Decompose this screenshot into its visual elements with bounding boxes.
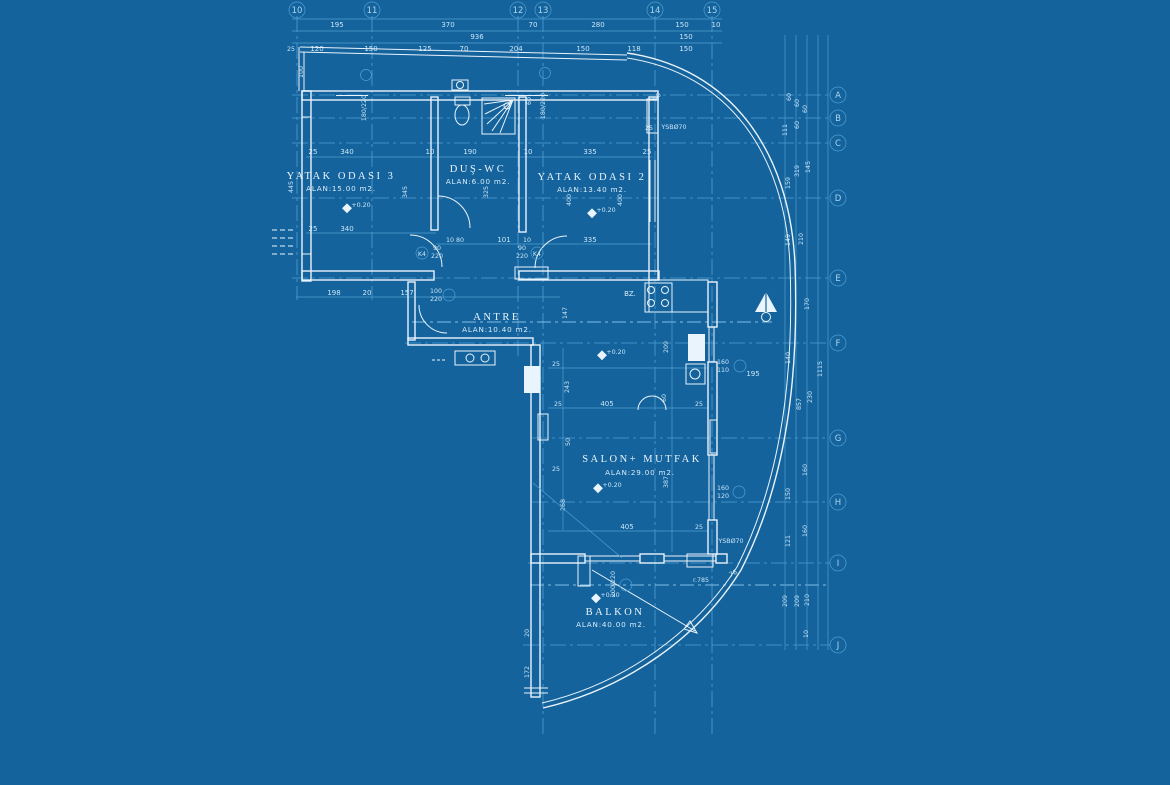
grid-bubbles-top: 10 11 12 13 14 15	[289, 2, 720, 18]
dim-text: 400	[566, 194, 573, 206]
dim-text: 25	[287, 46, 295, 53]
room-label-bath: DUŞ-WC	[450, 164, 506, 175]
blueprint-floor-plan: 10 11 12 13 14 15 A B C D E F G H I J 19…	[0, 0, 1170, 785]
room-area-bedroom3: ALAN:15.00 m2.	[306, 184, 376, 193]
dim-entry-door-height: 220	[430, 296, 442, 303]
elevation-text: +0.20	[602, 482, 621, 489]
appliance-label-bz: BZ.	[624, 290, 636, 298]
room-label-hall: ANTRE	[473, 312, 521, 323]
room-area-living: ALAN:29.00 m2.	[605, 468, 675, 477]
dim-text: 101	[497, 236, 510, 244]
dim-text: 60	[794, 121, 801, 129]
dim-text: 345	[402, 186, 409, 198]
door-size-label: 90	[518, 245, 526, 252]
grid-bubble-label: J	[836, 641, 840, 651]
window-size-label: 180/220	[361, 95, 368, 121]
dim-text: 25	[309, 225, 318, 233]
window-size-label: 200/220	[610, 571, 617, 597]
dim-text: 190	[463, 148, 476, 156]
dim-text: 195	[746, 370, 759, 378]
grid-bubble-label: 10	[292, 6, 303, 16]
dim-text: 325	[483, 186, 490, 198]
dim-text: 340	[340, 148, 353, 156]
grid-bubble-label: G	[835, 434, 842, 444]
grid-bubble-label: 11	[367, 6, 378, 16]
label-layer: YATAK ODASI 3 ALAN:15.00 m2. DUŞ-WC ALAN…	[287, 92, 744, 629]
dim-text: 195	[330, 21, 343, 29]
dim-text: 10	[524, 148, 533, 156]
grid-bubble-label: D	[835, 194, 842, 204]
dim-text: 10	[803, 630, 810, 638]
dim-entry-door-width: 100	[430, 288, 442, 295]
grid-bubble-label: H	[835, 498, 841, 508]
grid-bubble-label: 12	[513, 6, 524, 16]
grid-bubble-label: 15	[707, 6, 718, 16]
dim-text: 125	[418, 45, 431, 53]
dim-text: 25	[643, 148, 652, 156]
window-bubble-icon	[734, 360, 746, 372]
dim-text: 20	[524, 629, 531, 637]
room-area-balcony: ALAN:40.00 m2.	[576, 620, 646, 629]
dim-text: 145	[805, 161, 812, 173]
dim-text: 157	[400, 289, 413, 297]
dim-text: 150	[785, 488, 792, 500]
dim-text: 445	[288, 181, 295, 193]
dim-text: 25	[695, 524, 703, 531]
opening-labels: 180/220 180/220 K4 90 220 K4 90 220 160 …	[361, 68, 747, 598]
dim-text: 10	[426, 148, 435, 156]
dim-text: 405	[600, 400, 613, 408]
toilet-icon	[455, 97, 470, 125]
dim-text: 387	[663, 476, 670, 488]
grid-bubble-label: F	[836, 339, 841, 349]
dim-text: 25	[554, 401, 562, 408]
door-label: K4	[418, 251, 426, 258]
dim-text: 243	[564, 381, 571, 393]
dim-text: 210	[804, 594, 811, 606]
window-size-label: 160	[717, 485, 729, 492]
dim-text: 230	[807, 391, 814, 403]
dim-text: 268	[560, 499, 567, 511]
door-size-label: 220	[516, 253, 528, 260]
elevation-markers: +0.20 +0.20 +0.20 +0.20 +0.20	[342, 202, 626, 603]
grid-bubble-label: C	[835, 139, 841, 149]
dim-text: 111	[782, 124, 789, 136]
dim-text: 209	[663, 341, 670, 353]
north-arrow-icon	[755, 292, 777, 322]
pipe-label: YSBØ70	[660, 123, 686, 131]
room-label-living: SALON+ MUTFAK	[582, 454, 702, 465]
fridge-icon	[688, 334, 705, 361]
window-size-label: 180/220	[540, 93, 547, 119]
dim-text: 10	[523, 237, 531, 244]
window-bubble-icon	[540, 68, 551, 79]
dim-text: 150	[679, 33, 692, 41]
window-bubble-icon	[361, 70, 372, 81]
dim-text: 198	[327, 289, 340, 297]
dim-text: 120	[310, 45, 323, 53]
window-size-label: 160	[717, 359, 729, 366]
room-area-hall: ALAN:10.40 m2.	[462, 325, 532, 334]
room-label-balcony: BALKON	[586, 607, 645, 618]
dim-text: 936	[470, 33, 484, 41]
room-label-bedroom3: YATAK ODASI 3	[287, 171, 396, 182]
dim-text: 209	[782, 595, 789, 607]
cabinet-icon	[432, 351, 495, 365]
dim-text: 280	[591, 21, 604, 29]
dim-text: 857	[796, 398, 803, 410]
dim-text: 340	[340, 225, 353, 233]
dim-text: 210	[798, 233, 805, 245]
dim-text: 160	[802, 525, 809, 537]
dim-text: 405	[620, 523, 633, 531]
dim-text: 209	[794, 595, 801, 607]
dim-text: 121	[785, 535, 792, 547]
dim-text: 335	[583, 236, 596, 244]
grid-bubble-label: E	[835, 274, 840, 284]
dim-text: 335	[583, 148, 596, 156]
grid-layer: 10 11 12 13 14 15 A B C D E F G H I J	[289, 2, 846, 738]
grid-bubbles-right: A B C D E F G H I J	[830, 87, 846, 653]
dim-text: 50	[565, 438, 572, 446]
room-area-bath: ALAN:6.00 m2.	[446, 177, 510, 186]
corner-shower-icon	[482, 98, 515, 134]
dim-text: 160	[802, 464, 809, 476]
elevation-text: +0.20	[351, 202, 370, 209]
dim-text: 159	[785, 177, 792, 189]
dim-text: 150	[679, 45, 692, 53]
dim-text: 70	[529, 21, 538, 29]
grid-bubble-label: 14	[650, 6, 661, 16]
dim-text: 170	[804, 298, 811, 310]
grid-bubble-label: I	[837, 559, 840, 569]
dim-text: 60	[786, 93, 793, 101]
dim-text: 20	[363, 289, 372, 297]
dim-text: 25	[695, 401, 703, 408]
door-size-label: 90	[433, 245, 441, 252]
dim-text: 25	[309, 148, 318, 156]
door-size-label: 220	[431, 253, 443, 260]
curve-dim-label: 20	[653, 92, 663, 103]
dim-text: 118	[627, 45, 640, 53]
door-bubble-icon	[443, 289, 455, 301]
dim-text: 70	[460, 45, 469, 53]
elevation-text: +0.20	[596, 207, 615, 214]
dim-text: 60	[802, 105, 809, 113]
dim-text: 60	[794, 99, 801, 107]
grid-bubble-label: 13	[538, 6, 549, 16]
dim-text: 1115	[817, 361, 824, 377]
dim-text: 10	[712, 21, 721, 29]
radius-label: r.785	[693, 577, 709, 584]
pipe-label: YSBØ70	[717, 537, 743, 545]
grid-bubble-label: B	[835, 114, 841, 124]
dim-text: 25	[552, 466, 560, 473]
door-label: K4	[533, 251, 541, 258]
dim-text: 400	[617, 194, 624, 206]
window-size-label: 110	[717, 367, 729, 374]
shaft-icon	[524, 366, 540, 393]
room-area-bedroom2: ALAN:13.40 m2.	[557, 185, 627, 194]
dim-text: 150	[576, 45, 589, 53]
elevation-text: +0.20	[606, 349, 625, 356]
kitchen-sink-icon	[686, 364, 705, 384]
grid-bubble-label: A	[835, 91, 841, 101]
dim-text: 147	[562, 307, 569, 319]
dim-text: 150	[675, 21, 688, 29]
dim-text: 10 80	[446, 237, 464, 244]
dim-text: 370	[441, 21, 454, 29]
window-size-label: 120	[717, 493, 729, 500]
dim-text: 60	[526, 97, 533, 105]
window-bubble-icon	[733, 486, 745, 498]
dim-text: 319	[794, 165, 801, 177]
dim-text: 25	[552, 361, 560, 368]
room-label-bedroom2: YATAK ODASI 2	[538, 172, 647, 183]
dim-text: 172	[524, 666, 531, 678]
